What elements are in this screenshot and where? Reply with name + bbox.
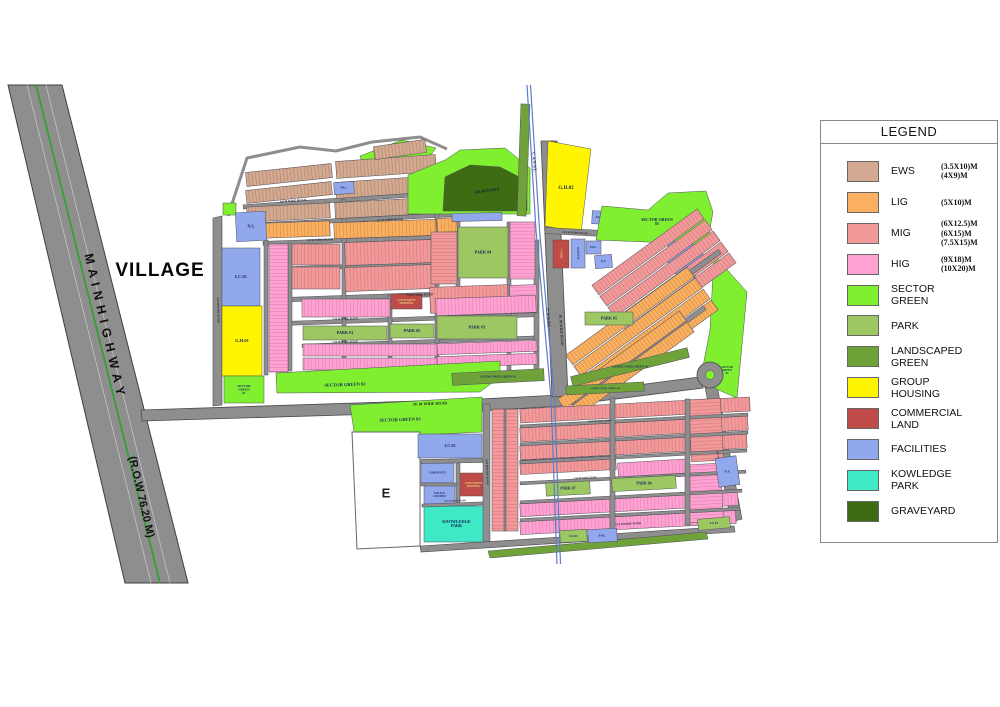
- housing-block-mig: [292, 244, 340, 265]
- housing-block-hig: [303, 344, 437, 356]
- legend-item-graveyard: GRAVEYARD: [847, 496, 993, 527]
- village-label: VILLAGE: [115, 260, 204, 281]
- legend-label: LANDSCAPED GREEN: [891, 345, 941, 369]
- legend-label: KOWLEDGE PARK: [891, 468, 941, 492]
- legend-panel: LEGEND EWS(3.5X10)M(4X9)MLIG(5X10)MMIG(6…: [820, 120, 998, 543]
- legend-items: EWS(3.5X10)M(4X9)MLIG(5X10)MMIG(6X12.5)M…: [821, 144, 997, 527]
- svg-text:N.S.: N.S.: [724, 469, 730, 473]
- facilities-block-lc01: LC.01: [222, 248, 260, 306]
- green-patch-west: [223, 203, 236, 215]
- road: [288, 243, 292, 371]
- svg-text:LS 02: LS 02: [710, 521, 718, 525]
- legend-swatch-knowledge-park: [847, 470, 879, 491]
- svg-text:PARK 05: PARK 05: [601, 315, 617, 320]
- legend-plot-sizes: (6X12.5)M(6X15)M(7.5X15)M: [941, 219, 978, 247]
- svg-text:PARK 07: PARK 07: [560, 486, 575, 490]
- legend-plot-sizes: (9X18)M(10X20)M: [941, 255, 976, 273]
- facilities-block-ns: N.S.: [594, 254, 612, 268]
- legend-item-ews: EWS(3.5X10)M(4X9)M: [847, 156, 993, 187]
- svg-text:FAC.: FAC.: [340, 186, 347, 190]
- housing-block-hig: [269, 244, 288, 372]
- svg-text:COMM.: COMM.: [559, 249, 562, 259]
- legend-swatch-commercial-land: [847, 408, 879, 429]
- legend-label: GRAVEYARD: [891, 505, 941, 517]
- legend-label: EWS: [891, 165, 941, 177]
- svg-text:C A N A L: C A N A L: [545, 308, 552, 328]
- svg-text:G.H.01: G.H.01: [235, 338, 250, 343]
- commercial-block: COMM.: [553, 240, 569, 268]
- legend-label: HIG: [891, 258, 941, 270]
- legend-swatch-park: [847, 315, 879, 336]
- sector-green-01: SECTORGREEN01: [224, 376, 264, 403]
- legend-swatch-graveyard: [847, 501, 879, 522]
- legend-swatch-sector-green: [847, 285, 879, 306]
- svg-text:LS 01: LS 01: [569, 534, 578, 538]
- park-03: PARK 03: [437, 316, 517, 339]
- map-shapes-layer: M A I N H I G H W A Y(R.O.W 76.20 M)VILL…: [8, 85, 750, 583]
- svg-text:G.H.02: G.H.02: [558, 186, 574, 191]
- master-plan-canvas: M A I N H I G H W A Y(R.O.W 76.20 M)VILL…: [0, 0, 1000, 707]
- svg-text:N.S.: N.S.: [247, 223, 254, 228]
- svg-text:POLICECHOWKI: POLICECHOWKI: [433, 492, 445, 498]
- facilities-block: FAC.: [586, 241, 601, 254]
- road: [685, 399, 690, 525]
- facilities-block-lc02: LC.02: [418, 434, 482, 458]
- svg-text:HOSPITAL: HOSPITAL: [576, 247, 579, 261]
- legend-label: LIG: [891, 196, 941, 208]
- legend-plot-sizes: (5X10)M: [941, 198, 972, 207]
- legend-swatch-facilities: [847, 439, 879, 460]
- legend-item-knowledge-park: KOWLEDGE PARK: [847, 465, 993, 496]
- road: [421, 458, 483, 463]
- svg-text:PARK 02: PARK 02: [404, 328, 421, 333]
- road-label: 12.0 M WIDE ROAD: [444, 499, 466, 503]
- legend-item-landscaped-green: LANDSCAPED GREEN: [847, 341, 993, 372]
- park-01: PARK 01: [303, 326, 387, 340]
- svg-text:PARK 04: PARK 04: [475, 249, 493, 254]
- svg-text:LC.01: LC.01: [235, 274, 248, 279]
- svg-text:LANDSCAPED GREEN 06: LANDSCAPED GREEN 06: [612, 365, 648, 369]
- svg-text:COMMUNITY: COMMUNITY: [429, 472, 446, 475]
- legend-label: FACILITIES: [891, 443, 941, 455]
- knowledge-park: KNOWLEDGEPARK: [424, 506, 489, 542]
- legend-item-mig: MIG(6X12.5)M(6X15)M(7.5X15)M: [847, 218, 993, 249]
- housing-block-hig: [510, 222, 535, 279]
- svg-text:12.0 M WIDE ROAD: 12.0 M WIDE ROAD: [444, 499, 466, 503]
- legend-item-hig: HIG(9X18)M(10X20)M: [847, 249, 993, 280]
- park-07: PARK 07: [546, 481, 591, 496]
- facilities-block-ns: N.S.: [715, 456, 740, 488]
- road: [264, 240, 268, 375]
- housing-block-hig: [302, 299, 390, 317]
- area-e: E: [352, 432, 420, 549]
- svg-text:CONVENIENTSHOPPING: CONVENIENTSHOPPING: [397, 299, 415, 305]
- legend-label: SECTOR GREEN: [891, 283, 941, 307]
- park-05: PARK 05: [585, 312, 633, 325]
- legend-swatch-lig: [847, 192, 879, 213]
- legend-swatch-landscaped-green: [847, 346, 879, 367]
- legend-label: PARK: [891, 320, 941, 332]
- park-02: PARK 02: [390, 324, 434, 338]
- housing-block-hig: [436, 295, 537, 315]
- svg-text:E: E: [382, 485, 391, 500]
- legend-swatch-mig: [847, 223, 879, 244]
- highway-lane-line-left: [27, 85, 151, 583]
- facilities-hospital: HOSPITAL: [571, 239, 585, 268]
- legend-label: GROUP HOUSING: [891, 376, 941, 400]
- park-04: PARK 04: [458, 227, 508, 278]
- facilities-block: FAC.: [334, 181, 355, 194]
- legend-swatch-hig: [847, 254, 879, 275]
- group-housing-gh02: G.H.02: [545, 141, 591, 233]
- housing-block-lig: [334, 219, 436, 239]
- roundabout-center: [706, 371, 715, 380]
- legend-item-park: PARK: [847, 310, 993, 341]
- housing-block-mig: [431, 232, 457, 284]
- svg-text:FAC.: FAC.: [599, 533, 607, 537]
- svg-text:PARK 03: PARK 03: [469, 324, 486, 329]
- road: [421, 483, 457, 486]
- housing-block-mig: [345, 264, 436, 291]
- svg-text:VILLAGE: VILLAGE: [115, 260, 204, 281]
- legend-item-sector-green: SECTOR GREEN: [847, 280, 993, 311]
- road: [504, 409, 506, 531]
- svg-text:LANDSCAPED GREEN 04: LANDSCAPED GREEN 04: [590, 387, 620, 390]
- housing-block-mig: [292, 267, 340, 289]
- legend-item-facilities: FACILITIES: [847, 434, 993, 465]
- svg-text:PARK 01: PARK 01: [337, 330, 354, 335]
- legend-plot-sizes: (3.5X10)M(4X9)M: [941, 162, 978, 180]
- facilities-strip: [452, 213, 502, 222]
- svg-text:LANDSCAPED GREEN 05: LANDSCAPED GREEN 05: [480, 375, 516, 379]
- facilities-community: COMMUNITY: [421, 463, 454, 483]
- legend-swatch-group-housing: [847, 377, 879, 398]
- housing-block-mig: [345, 239, 436, 265]
- svg-text:FAC.: FAC.: [590, 245, 597, 249]
- legend-title: LEGEND: [821, 121, 997, 144]
- legend-item-commercial-land: COMMERCIAL LAND: [847, 403, 993, 434]
- group-housing-gh01: G.H.01: [222, 306, 262, 376]
- svg-text:CONVENIENTSHOPPING: CONVENIENTSHOPPING: [465, 482, 483, 488]
- legend-item-group-housing: GROUP HOUSING: [847, 372, 993, 403]
- svg-text:LC.02: LC.02: [444, 443, 455, 448]
- legend-label: MIG: [891, 227, 941, 239]
- facilities-block-ns: N.S.: [235, 211, 266, 242]
- housing-block-lig: [266, 221, 330, 238]
- facilities-block: FAC.: [588, 528, 618, 542]
- svg-text:N.S.: N.S.: [601, 259, 607, 263]
- legend-item-lig: LIG(5X10)M: [847, 187, 993, 218]
- legend-label: COMMERCIAL LAND: [891, 407, 941, 431]
- legend-swatch-ews: [847, 161, 879, 182]
- svg-text:PARK 06: PARK 06: [636, 481, 651, 485]
- canal-label-lower: C A N A L: [545, 308, 552, 328]
- ls-01: LS 01: [560, 529, 588, 542]
